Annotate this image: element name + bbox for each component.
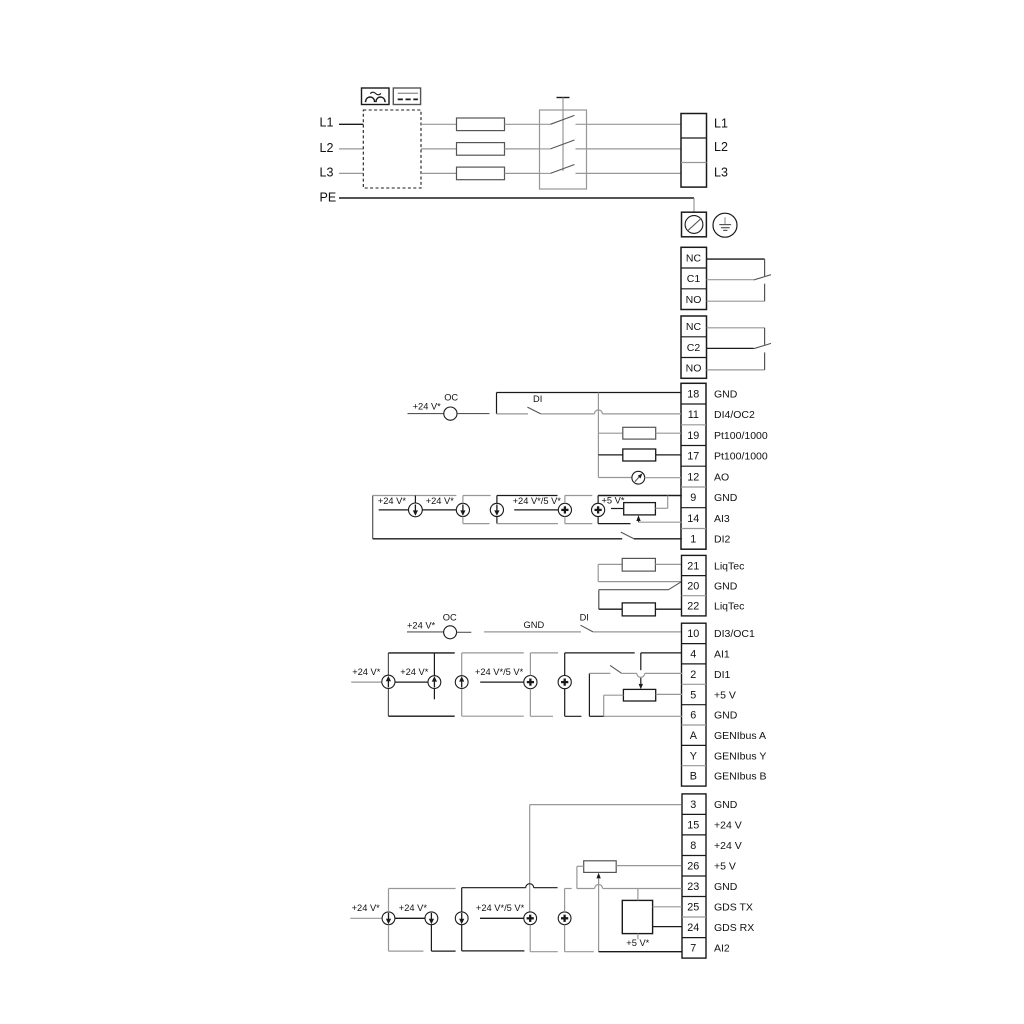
svg-text:15: 15 bbox=[687, 820, 699, 832]
svg-text:GND: GND bbox=[714, 881, 738, 893]
svg-text:L2: L2 bbox=[714, 140, 728, 154]
svg-text:3: 3 bbox=[690, 799, 696, 811]
svg-text:Y: Y bbox=[690, 750, 697, 762]
svg-text:GDS RX: GDS RX bbox=[714, 922, 754, 934]
svg-text:+5 V: +5 V bbox=[714, 689, 736, 701]
svg-text:OC: OC bbox=[443, 612, 457, 622]
svg-text:GND: GND bbox=[714, 710, 738, 722]
svg-text:11: 11 bbox=[688, 409, 699, 421]
svg-text:+5 V*: +5 V* bbox=[602, 496, 625, 506]
svg-text:1: 1 bbox=[690, 534, 696, 546]
svg-text:5: 5 bbox=[690, 689, 696, 701]
svg-text:4: 4 bbox=[690, 649, 696, 661]
svg-text:AO: AO bbox=[714, 471, 729, 483]
svg-text:PE: PE bbox=[320, 190, 337, 204]
svg-text:L2: L2 bbox=[320, 141, 334, 155]
svg-text:12: 12 bbox=[687, 471, 699, 483]
svg-text:14: 14 bbox=[687, 513, 699, 525]
svg-text:22: 22 bbox=[687, 601, 699, 613]
svg-text:20: 20 bbox=[687, 580, 699, 592]
svg-text:OC: OC bbox=[444, 392, 458, 402]
svg-text:L1: L1 bbox=[320, 115, 334, 129]
svg-text:GDS TX: GDS TX bbox=[714, 902, 753, 914]
svg-text:+5 V*: +5 V* bbox=[626, 938, 649, 948]
svg-text:19: 19 bbox=[687, 430, 699, 442]
svg-text:+24 V*: +24 V* bbox=[407, 621, 436, 631]
svg-text:L1: L1 bbox=[714, 117, 728, 131]
svg-text:L3: L3 bbox=[714, 165, 728, 179]
svg-text:DI2: DI2 bbox=[714, 534, 731, 546]
svg-text:GND: GND bbox=[714, 580, 738, 592]
svg-text:+24 V*/5 V*: +24 V*/5 V* bbox=[475, 667, 524, 677]
svg-text:+24 V*: +24 V* bbox=[426, 496, 455, 506]
svg-text:18: 18 bbox=[687, 389, 699, 401]
svg-text:GND: GND bbox=[714, 492, 738, 504]
svg-text:Pt100/1000: Pt100/1000 bbox=[714, 451, 768, 463]
svg-text:+24 V*/5 V*: +24 V*/5 V* bbox=[476, 903, 525, 913]
svg-text:21: 21 bbox=[687, 560, 699, 572]
svg-text:A: A bbox=[690, 730, 698, 742]
svg-text:8: 8 bbox=[690, 840, 696, 852]
svg-text:7: 7 bbox=[690, 943, 696, 955]
svg-text:DI3/OC1: DI3/OC1 bbox=[714, 628, 755, 640]
svg-text:LiqTec: LiqTec bbox=[714, 560, 744, 572]
svg-text:NO: NO bbox=[686, 363, 702, 375]
svg-text:+24 V*: +24 V* bbox=[378, 496, 407, 506]
svg-text:B: B bbox=[690, 771, 697, 783]
svg-text:25: 25 bbox=[687, 902, 699, 914]
svg-text:+24 V: +24 V bbox=[714, 820, 742, 832]
svg-text:9: 9 bbox=[690, 492, 696, 504]
svg-text:C1: C1 bbox=[687, 273, 701, 285]
svg-text:+5 V: +5 V bbox=[714, 861, 736, 873]
svg-text:2: 2 bbox=[690, 669, 696, 681]
svg-text:DI: DI bbox=[533, 394, 542, 404]
svg-text:6: 6 bbox=[690, 710, 696, 722]
svg-text:GND: GND bbox=[714, 389, 738, 401]
svg-text:+24 V: +24 V bbox=[714, 840, 742, 852]
svg-text:GENIbus Y: GENIbus Y bbox=[714, 750, 766, 762]
svg-text:AI2: AI2 bbox=[714, 943, 730, 955]
svg-text:26: 26 bbox=[687, 861, 699, 873]
svg-text:GND: GND bbox=[714, 799, 738, 811]
svg-text:10: 10 bbox=[687, 628, 699, 640]
svg-text:GND: GND bbox=[524, 620, 545, 630]
svg-text:AI1: AI1 bbox=[714, 649, 730, 661]
svg-text:DI: DI bbox=[580, 612, 589, 622]
svg-text:GENIbus A: GENIbus A bbox=[714, 730, 766, 742]
svg-text:C2: C2 bbox=[687, 342, 701, 354]
svg-text:23: 23 bbox=[687, 881, 699, 893]
svg-text:17: 17 bbox=[687, 451, 699, 463]
svg-text:LiqTec: LiqTec bbox=[714, 601, 744, 613]
svg-text:NO: NO bbox=[686, 294, 702, 306]
svg-text:NC: NC bbox=[686, 252, 702, 264]
svg-text:DI4/OC2: DI4/OC2 bbox=[714, 409, 755, 421]
svg-text:+24 V*: +24 V* bbox=[413, 401, 442, 411]
svg-text:AI3: AI3 bbox=[714, 513, 730, 525]
svg-text:NC: NC bbox=[686, 321, 702, 333]
svg-text:+24 V*: +24 V* bbox=[352, 903, 381, 913]
svg-text:+24 V*: +24 V* bbox=[399, 903, 428, 913]
svg-text:+24 V*/5 V*: +24 V*/5 V* bbox=[513, 496, 562, 506]
svg-text:Pt100/1000: Pt100/1000 bbox=[714, 430, 768, 442]
svg-text:+24 V*: +24 V* bbox=[352, 667, 381, 677]
svg-text:DI1: DI1 bbox=[714, 669, 731, 681]
svg-text:GENIbus B: GENIbus B bbox=[714, 771, 767, 783]
svg-text:24: 24 bbox=[687, 922, 699, 934]
svg-text:L3: L3 bbox=[320, 166, 334, 180]
svg-text:+24 V*: +24 V* bbox=[400, 667, 429, 677]
